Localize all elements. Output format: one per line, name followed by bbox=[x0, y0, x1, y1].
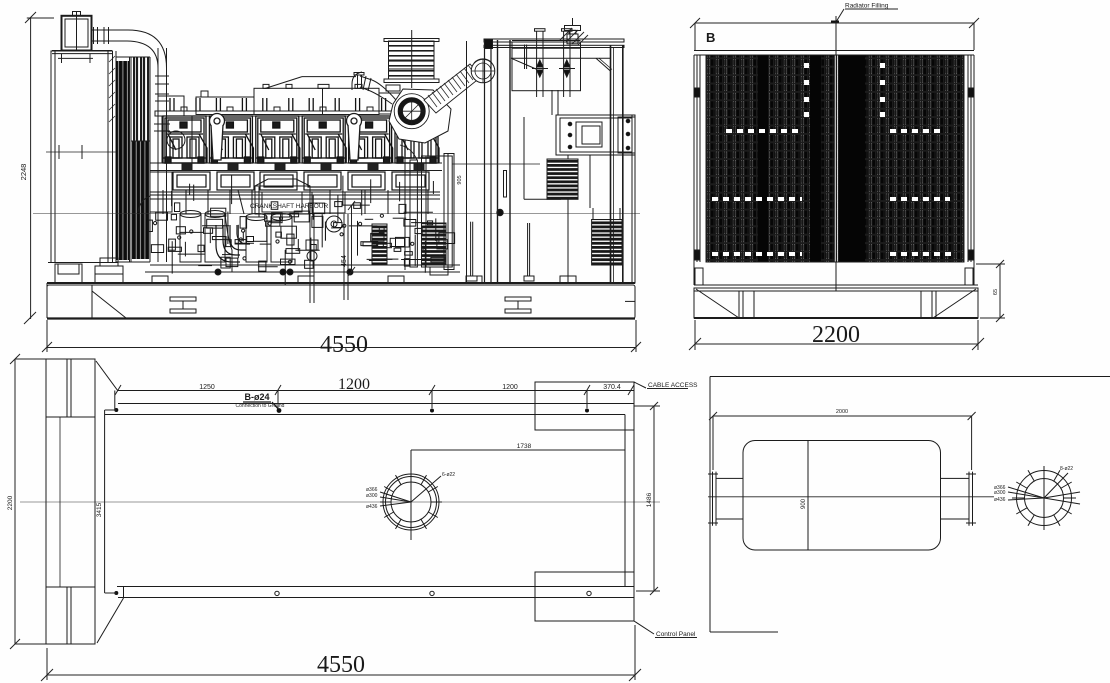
svg-text:370.4: 370.4 bbox=[603, 384, 621, 391]
svg-text:2200: 2200 bbox=[812, 322, 860, 348]
svg-text:ø300: ø300 bbox=[994, 490, 1006, 496]
svg-text:Control Panel: Control Panel bbox=[656, 631, 696, 638]
svg-text:3415: 3415 bbox=[96, 502, 103, 517]
svg-text:65: 65 bbox=[993, 289, 999, 295]
svg-text:1200: 1200 bbox=[502, 384, 518, 391]
svg-text:900: 900 bbox=[801, 498, 807, 509]
svg-text:4550: 4550 bbox=[320, 332, 368, 358]
svg-text:1200: 1200 bbox=[338, 376, 370, 393]
svg-text:CABLE ACCESS: CABLE ACCESS bbox=[648, 382, 698, 389]
svg-text:1738: 1738 bbox=[517, 443, 532, 450]
svg-text:B-ø24: B-ø24 bbox=[244, 392, 269, 402]
svg-text:454: 454 bbox=[341, 255, 348, 267]
svg-text:8-ø22: 8-ø22 bbox=[1060, 466, 1073, 472]
svg-text:CRANKSHAFT HARBOUR: CRANKSHAFT HARBOUR bbox=[250, 203, 329, 210]
svg-text:1250: 1250 bbox=[199, 384, 215, 391]
svg-text:1486: 1486 bbox=[646, 492, 653, 507]
svg-text:4550: 4550 bbox=[317, 652, 365, 678]
svg-text:ø436: ø436 bbox=[366, 504, 378, 510]
svg-text:905: 905 bbox=[457, 175, 463, 184]
svg-text:B: B bbox=[706, 30, 715, 45]
svg-text:ø300: ø300 bbox=[366, 493, 378, 499]
svg-text:2200: 2200 bbox=[7, 495, 14, 510]
svg-text:6-ø22: 6-ø22 bbox=[442, 472, 455, 478]
svg-text:2248: 2248 bbox=[19, 164, 28, 181]
svg-text:ø436: ø436 bbox=[994, 497, 1006, 503]
svg-text:Radiator Filling: Radiator Filling bbox=[845, 3, 889, 10]
svg-text:2000: 2000 bbox=[836, 409, 848, 415]
